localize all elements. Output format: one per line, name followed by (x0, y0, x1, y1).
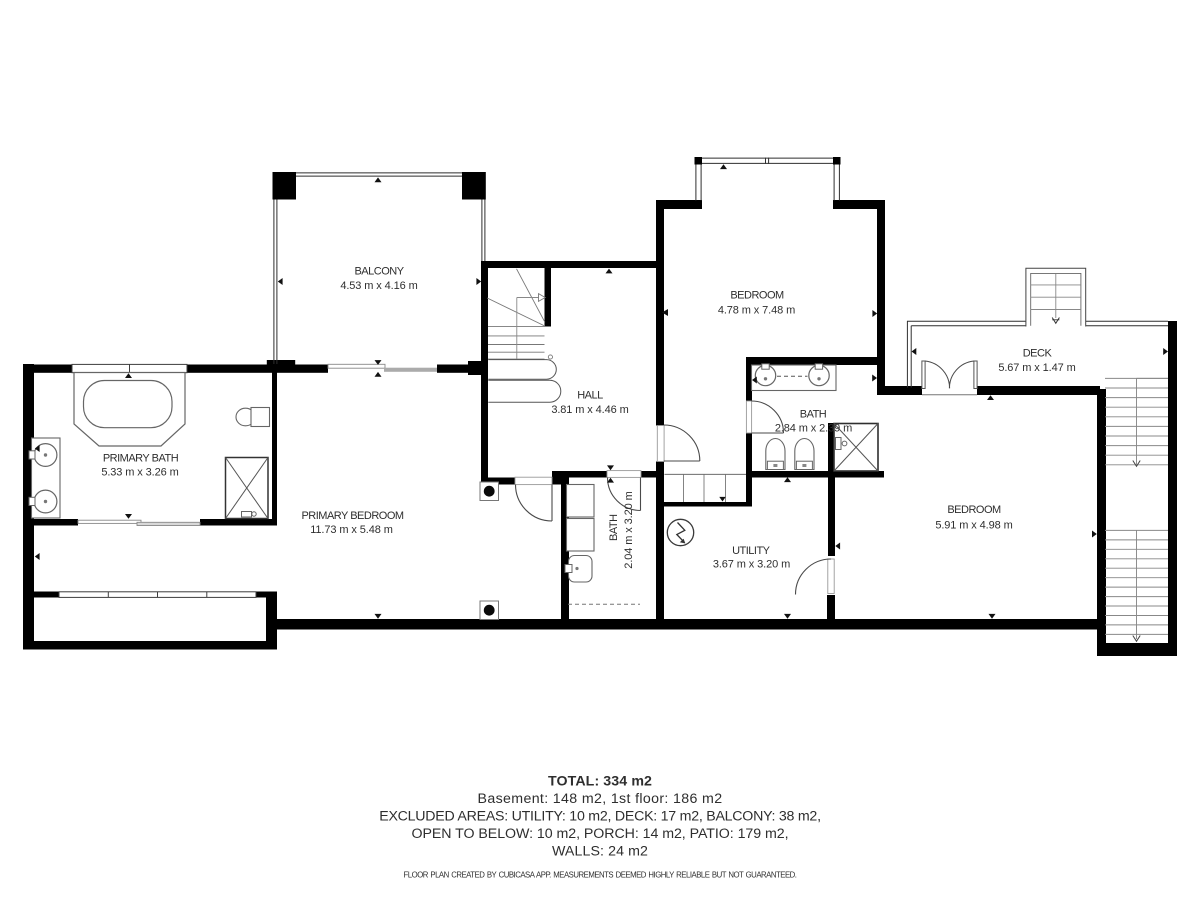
svg-text:4.78 m x 7.48 m: 4.78 m x 7.48 m (718, 304, 795, 316)
svg-text:11.73 m x 5.48 m: 11.73 m x 5.48 m (310, 524, 393, 536)
svg-text:WALLS: 24 m2: WALLS: 24 m2 (552, 843, 648, 859)
svg-text:4.53 m x 4.16 m: 4.53 m x 4.16 m (340, 280, 417, 292)
svg-text:5.91 m x 4.98 m: 5.91 m x 4.98 m (935, 520, 1012, 532)
svg-text:PRIMARY BEDROOM: PRIMARY BEDROOM (301, 510, 403, 522)
svg-text:DECK: DECK (1023, 347, 1053, 359)
svg-text:BALCONY: BALCONY (354, 265, 404, 277)
svg-text:UTILITY: UTILITY (732, 545, 771, 557)
svg-text:5.33 m x 3.26 m: 5.33 m x 3.26 m (101, 467, 178, 479)
svg-text:3.67 m x 3.20 m: 3.67 m x 3.20 m (713, 559, 790, 571)
svg-text:BEDROOM: BEDROOM (947, 504, 1001, 516)
svg-text:BATH: BATH (608, 514, 620, 541)
svg-text:FLOOR PLAN CREATED BY CUBICASA: FLOOR PLAN CREATED BY CUBICASA APP. MEAS… (404, 871, 797, 880)
svg-text:2.84 m x 2.39 m: 2.84 m x 2.39 m (775, 422, 852, 434)
svg-text:PRIMARY BATH: PRIMARY BATH (103, 452, 179, 464)
svg-text:TOTAL: 334 m2: TOTAL: 334 m2 (548, 774, 652, 790)
svg-text:EXCLUDED AREAS: UTILITY: 10 m2: EXCLUDED AREAS: UTILITY: 10 m2, DECK: 17… (379, 808, 821, 824)
svg-text:HALL: HALL (577, 390, 603, 402)
svg-text:BEDROOM: BEDROOM (730, 290, 784, 302)
svg-text:OPEN TO BELOW: 10 m2, PORCH: 1: OPEN TO BELOW: 10 m2, PORCH: 14 m2, PATI… (411, 826, 788, 842)
svg-text:BATH: BATH (800, 408, 827, 420)
svg-text:5.67 m x 1.47 m: 5.67 m x 1.47 m (998, 362, 1075, 374)
svg-text:2.04 m x 3.20 m: 2.04 m x 3.20 m (623, 491, 635, 568)
svg-text:Basement: 148 m2, 1st floor: 1: Basement: 148 m2, 1st floor: 186 m2 (478, 791, 723, 807)
svg-text:3.81 m x 4.46 m: 3.81 m x 4.46 m (551, 404, 628, 416)
